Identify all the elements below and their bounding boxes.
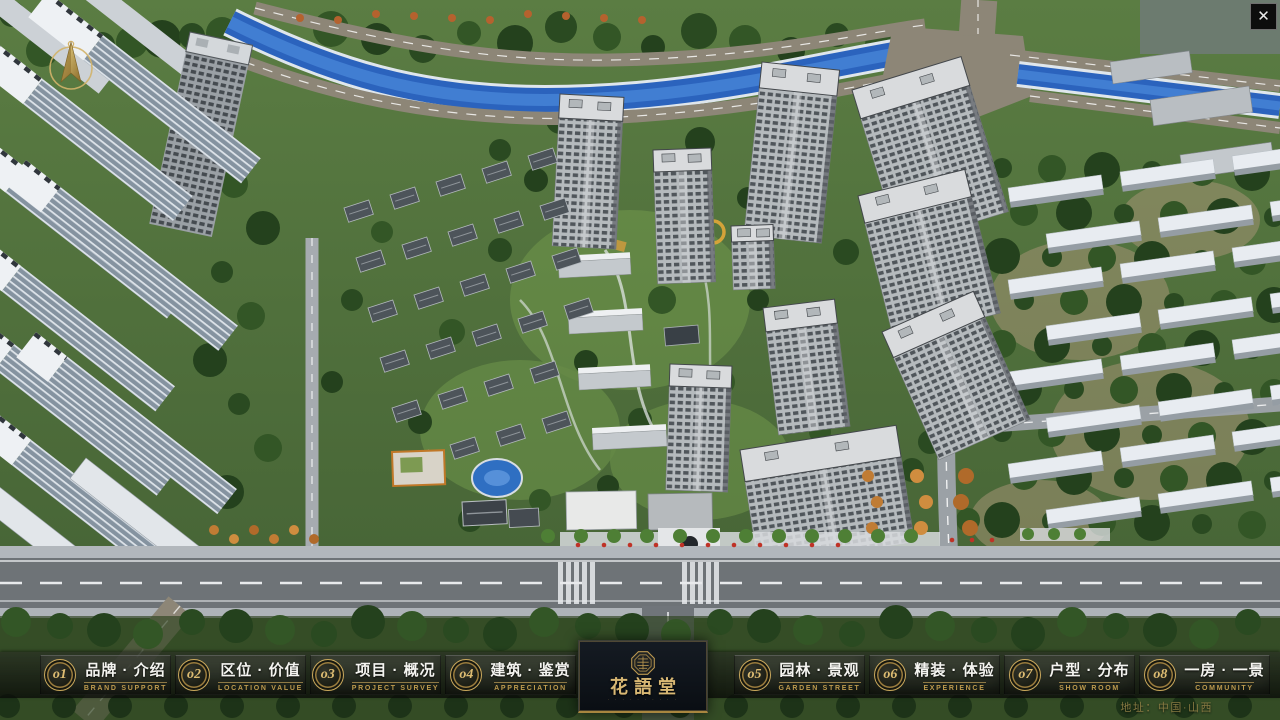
menu-item-label: 园林 · 景观 — [779, 659, 859, 680]
menu-item-number: o5 — [748, 667, 762, 683]
menu-item-number-badge: o5 — [739, 659, 771, 691]
menu-item-text: 区位 · 价值 LOCATION VALUE — [218, 659, 303, 692]
tower — [763, 299, 850, 435]
menu-item-sublabel: EXPERIENCE — [923, 682, 985, 692]
sales-presentation-window: ✕ o1 品牌 · 介绍 BRAND SUPPORT o2 区位 · 价值 LO… — [0, 0, 1280, 720]
menu-item-sublabel: GARDEN STREET — [779, 682, 861, 692]
brand-logo-plate[interactable]: 花語堂 · · · · · · · · · · — [578, 640, 708, 713]
menu-item-text: 建筑 · 鉴赏 APPRECIATION — [490, 659, 570, 692]
close-button[interactable]: ✕ — [1250, 3, 1277, 30]
menu-item-text: 项目 · 概况 PROJECT SURVEY — [352, 659, 439, 692]
menu-item-text: 户型 · 分布 SHOW ROOM — [1049, 659, 1129, 692]
tower — [666, 364, 732, 492]
menu-item-label: 区位 · 价值 — [220, 659, 300, 680]
menu-item-sublabel: PROJECT SURVEY — [352, 682, 439, 692]
tower — [552, 94, 624, 249]
menu-item-8[interactable]: o8 一房 · 一景 COMMUNITY — [1139, 655, 1270, 695]
clubhouse — [392, 450, 445, 486]
menu-group-left: o1 品牌 · 介绍 BRAND SUPPORT o2 区位 · 价值 LOCA… — [40, 652, 576, 698]
menu-item-sublabel: LOCATION VALUE — [218, 682, 303, 692]
octagon-seal-icon — [630, 650, 656, 676]
menu-item-label: 精装 · 体验 — [914, 659, 994, 680]
brand-caption: · · · · · · · · · · — [608, 698, 679, 702]
tower — [731, 225, 775, 290]
menu-item-label: 建筑 · 鉴赏 — [490, 659, 570, 680]
menu-item-3[interactable]: o3 项目 · 概况 PROJECT SURVEY — [310, 655, 441, 695]
project-address: 地址：中国·山西 — [1120, 699, 1213, 715]
menu-item-number-badge: o4 — [450, 659, 482, 691]
tower — [653, 148, 716, 284]
menu-item-1[interactable]: o1 品牌 · 介绍 BRAND SUPPORT — [40, 655, 171, 695]
masterplan-render — [0, 0, 1280, 720]
menu-item-number: o8 — [1153, 667, 1167, 683]
menu-item-text: 品牌 · 介绍 BRAND SUPPORT — [84, 659, 167, 692]
menu-item-sublabel: APPRECIATION — [494, 682, 567, 692]
menu-item-6[interactable]: o6 精装 · 体验 EXPERIENCE — [869, 655, 1000, 695]
menu-item-number: o4 — [459, 667, 473, 683]
menu-item-sublabel: BRAND SUPPORT — [84, 682, 167, 692]
menu-item-number: o6 — [883, 667, 897, 683]
menu-item-label: 户型 · 分布 — [1049, 659, 1129, 680]
menu-item-sublabel: COMMUNITY — [1195, 682, 1253, 692]
menu-item-2[interactable]: o2 区位 · 价值 LOCATION VALUE — [175, 655, 306, 695]
menu-item-label: 项目 · 概况 — [355, 659, 435, 680]
menu-item-number: o2 — [187, 667, 201, 683]
brand-name: 花語堂 — [604, 678, 682, 696]
menu-item-label: 一房 · 一景 — [1184, 659, 1264, 680]
menu-item-number: o7 — [1018, 667, 1032, 683]
menu-item-number-badge: o6 — [874, 659, 906, 691]
menu-item-7[interactable]: o7 户型 · 分布 SHOW ROOM — [1004, 655, 1135, 695]
menu-item-text: 一房 · 一景 COMMUNITY — [1184, 659, 1264, 692]
menu-item-sublabel: SHOW ROOM — [1059, 682, 1120, 692]
menu-group-right: o5 园林 · 景观 GARDEN STREET o6 精装 · 体验 EXPE… — [734, 652, 1270, 698]
menu-item-number-badge: o3 — [312, 659, 344, 691]
menu-item-5[interactable]: o5 园林 · 景观 GARDEN STREET — [734, 655, 865, 695]
menu-item-text: 精装 · 体验 EXPERIENCE — [914, 659, 994, 692]
menu-item-4[interactable]: o4 建筑 · 鉴赏 APPRECIATION — [445, 655, 576, 695]
menu-item-number-badge: o2 — [178, 659, 210, 691]
menu-item-number: o1 — [53, 667, 67, 683]
menu-item-number-badge: o8 — [1144, 659, 1176, 691]
menu-item-number-badge: o7 — [1009, 659, 1041, 691]
compass-icon — [40, 34, 102, 98]
pavilion — [664, 325, 699, 346]
menu-item-number-badge: o1 — [44, 659, 76, 691]
menu-item-text: 园林 · 景观 GARDEN STREET — [779, 659, 861, 692]
menu-item-label: 品牌 · 介绍 — [85, 659, 165, 680]
menu-item-number: o3 — [321, 667, 335, 683]
